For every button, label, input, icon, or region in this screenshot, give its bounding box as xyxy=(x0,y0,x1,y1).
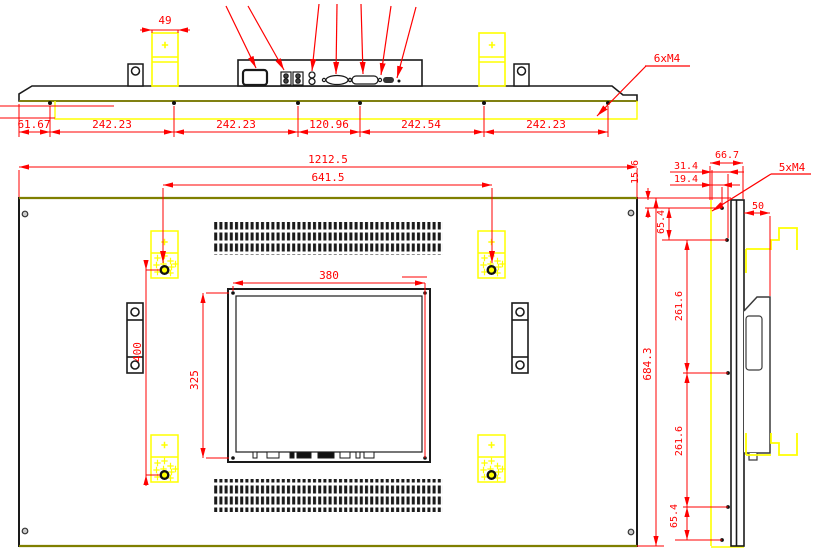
dim-hole-offset-b-label: 19.4 xyxy=(674,174,698,185)
dim-bracket-width-label: 49 xyxy=(158,14,171,27)
dim-hole-offset-a-label: 31.4 xyxy=(674,161,698,172)
dim-bracket-width xyxy=(140,27,190,33)
side-hole-dots xyxy=(720,206,730,542)
yellow-band xyxy=(55,101,637,119)
dim-lcd-height-label: 325 xyxy=(188,370,201,390)
dim-spacing-3: 120.96 xyxy=(309,118,349,131)
side-rear-box xyxy=(744,297,770,460)
dim-hole-spacing-top xyxy=(666,208,671,240)
cropped-left-dim xyxy=(0,104,114,119)
mount-block-top-a xyxy=(152,33,178,86)
vent-grille-bottom xyxy=(213,479,443,512)
thread-callout-5xm4-label: 5xM4 xyxy=(779,161,806,174)
dim-spacing-1: 242.23 xyxy=(92,118,132,131)
top-panel-outline xyxy=(19,86,637,101)
bracket-right xyxy=(514,64,529,86)
engineering-drawing-page: 49 61.67 242.23 242.23 120.96 242.54 242… xyxy=(0,0,813,555)
dim-hole-spacing-lower-label: 261.6 xyxy=(674,426,685,456)
handle-right xyxy=(512,303,528,373)
dim-top-edge-offset xyxy=(645,188,650,218)
thread-callout-6xm4-label: 6xM4 xyxy=(654,52,681,65)
top-view: 49 61.67 242.23 242.23 120.96 242.54 242… xyxy=(0,4,690,137)
dim-hole-spacing-bottom-label: 65.4 xyxy=(669,504,680,528)
dim-mount-vertical-label: 400 xyxy=(131,342,144,362)
side-panel-slab xyxy=(731,200,744,546)
dim-side-chain xyxy=(684,240,689,540)
front-view: 1212.5 641.5 400 380 xyxy=(19,153,664,546)
usb-port-2 xyxy=(293,72,303,85)
dim-depth-label: 66.7 xyxy=(715,150,739,161)
panel-dimension-drawing: 49 61.67 242.23 242.23 120.96 242.54 242… xyxy=(0,0,813,555)
dim-hole-spacing-upper-label: 261.6 xyxy=(674,291,685,321)
dim-spacing-2: 242.23 xyxy=(216,118,256,131)
dim-spacing-4: 242.54 xyxy=(401,118,441,131)
mount-block-top-b xyxy=(479,33,505,86)
lcd-module xyxy=(228,289,430,462)
dim-spacing-0: 61.67 xyxy=(17,118,50,131)
hdmi-connector xyxy=(383,77,394,83)
dim-spacing-5: 242.23 xyxy=(526,118,566,131)
dim-lcd-width-label: 380 xyxy=(319,269,339,282)
dvi-connector xyxy=(348,76,381,84)
dim-overall-height-label: 684.3 xyxy=(641,347,654,380)
dim-hole-spacing-top-label: 65.4 xyxy=(656,210,667,234)
dim-rear-box-depth-label: 50 xyxy=(752,201,764,212)
bracket-left xyxy=(128,64,143,86)
thread-callout-6xm4: 6xM4 xyxy=(597,52,690,116)
dim-overall-width-label: 1212.5 xyxy=(308,153,348,166)
side-view: 15.6 65.4 261.6 261.6 65.4 66.7 31.4 xyxy=(630,150,811,547)
power-connector xyxy=(243,70,267,85)
vent-grille-top xyxy=(213,222,443,255)
dim-depth xyxy=(710,160,743,165)
dim-mount-span-label: 641.5 xyxy=(311,171,344,184)
usb-port-1 xyxy=(281,72,291,85)
pinhole xyxy=(398,80,401,83)
dim-top-edge-offset-label: 15.6 xyxy=(630,160,641,184)
